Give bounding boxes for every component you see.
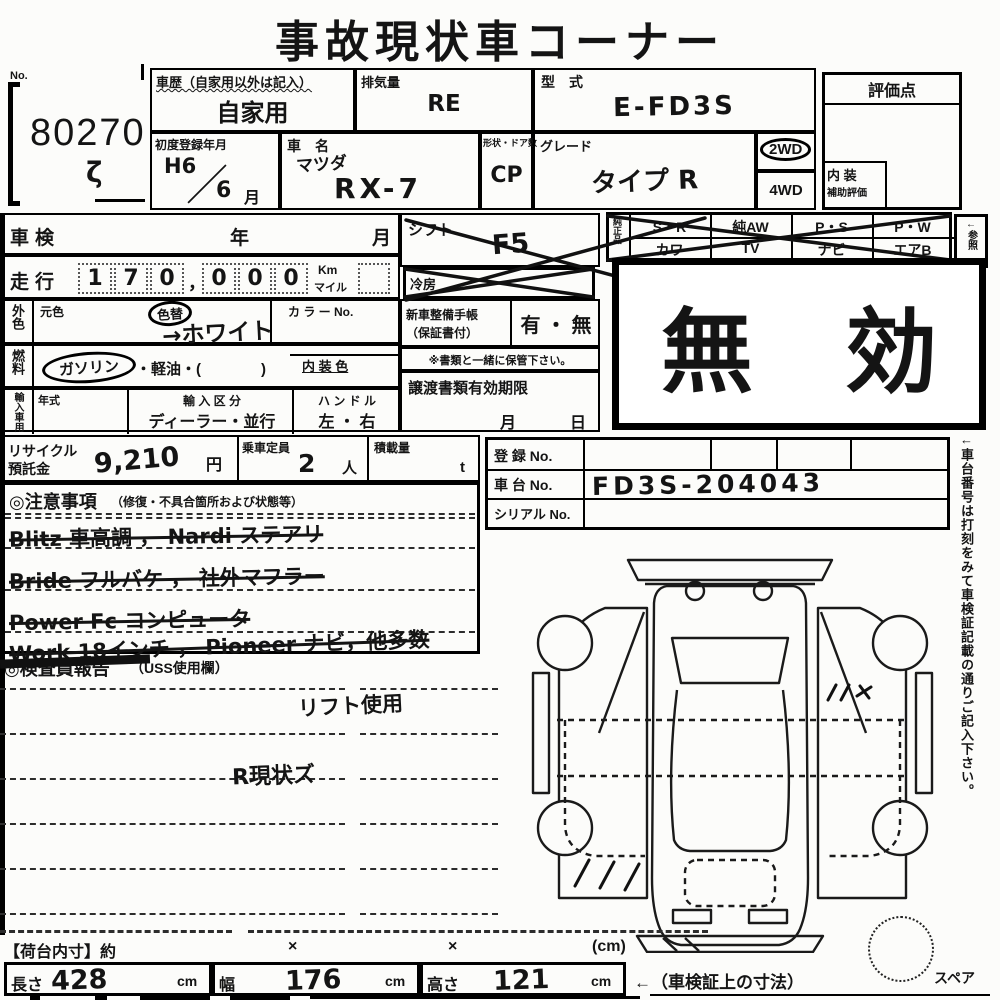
body-doors-label: 形状・ドア数 bbox=[483, 136, 531, 149]
lot-bracket-foot bbox=[95, 199, 145, 202]
note-line: Bride フルバケ ， 社外マフラー bbox=[9, 560, 325, 596]
fuel-diesel: ・軽油・( ) bbox=[136, 358, 266, 379]
ext-color-row: 外色 元色 色替 →ホワイト カ ラ ー No. bbox=[0, 299, 400, 344]
serial-no-label: シリアル No. bbox=[494, 504, 570, 523]
import-class-value: ディーラー・並行 bbox=[132, 408, 292, 432]
equip-leather: カワ bbox=[629, 240, 710, 260]
note-line: Blitz 車高調 ， Nardi ステアリ bbox=[9, 518, 324, 553]
history-cell: 車歴（自家用以外は記入） 自家用 bbox=[150, 68, 355, 132]
year-model-label: 年式 bbox=[38, 392, 60, 408]
shaken-year-label: 年 bbox=[230, 223, 249, 250]
drive-2wd: 2WD bbox=[760, 138, 811, 161]
notes-box: ◎注意事項 （修復・不具合箇所および状態等） Blitz 車高調 ， Nardi… bbox=[0, 482, 480, 654]
drive-2wd-cell: 2WD bbox=[756, 132, 816, 171]
first-reg-month: 6 bbox=[216, 178, 231, 203]
equip-pw: P・W bbox=[872, 217, 953, 237]
divider bbox=[710, 440, 712, 469]
shift-label: シフト bbox=[408, 219, 453, 240]
drive-4wd: 4WD bbox=[758, 182, 814, 199]
rule-line bbox=[360, 868, 498, 870]
history-value: 自家用 bbox=[152, 93, 353, 128]
displacement-cell: 排気量 RE bbox=[355, 68, 533, 132]
fuel-gasoline: ガソリン bbox=[41, 349, 137, 386]
mileage-row: 走行 1 7 0 ， 0 0 0 Km マイル bbox=[0, 255, 400, 299]
drive-4wd-cell: 4WD bbox=[756, 171, 816, 210]
length-cell: 長さ 428 cm bbox=[4, 962, 212, 996]
mileage-digit: 7 bbox=[114, 263, 148, 294]
model-code-cell: 型 式 E-FD3S bbox=[533, 68, 816, 132]
equip-sr: S・R bbox=[629, 217, 710, 237]
shaken-label: 車検 bbox=[10, 223, 60, 250]
length-unit: cm bbox=[177, 973, 197, 989]
keep-note-cell: ※書類と一緒に保管下さい。 bbox=[400, 347, 600, 371]
divider bbox=[270, 301, 272, 346]
rule-line bbox=[0, 930, 232, 933]
displacement-label: 排気量 bbox=[361, 72, 531, 91]
side-note-text: ←車台番号は打刻をみて車検証記載の通りご記入下さい。 bbox=[957, 432, 976, 902]
import-class-label: 輸 入 区 分 bbox=[132, 392, 292, 409]
cutoff-mark bbox=[230, 996, 290, 1000]
width-value: 176 bbox=[284, 964, 341, 997]
width-unit: cm bbox=[385, 973, 405, 989]
chassis-no-value: FD3S-204043 bbox=[592, 468, 824, 501]
bed-x1: × bbox=[288, 938, 297, 956]
interior-color-label: 内 装 色 bbox=[302, 356, 348, 375]
handle-label: ハ ン ド ル bbox=[297, 392, 397, 409]
cutoff-mark bbox=[650, 994, 990, 996]
spare-label: スペア bbox=[934, 968, 975, 988]
divider bbox=[127, 390, 129, 434]
history-label: 車歴（自家用以外は記入） bbox=[156, 72, 353, 91]
model-code-label: 型 式 bbox=[541, 72, 814, 92]
handle-value: 左 ・ 右 bbox=[297, 408, 397, 432]
recycle-label-2: 預託金 bbox=[8, 459, 50, 479]
rule-line bbox=[0, 688, 345, 690]
first-reg-cell: 初度登録年月 H6 ／ 6 月 bbox=[150, 132, 280, 210]
import-row: 輸入車用 年式 輸 入 区 分 ディーラー・並行 ハ ン ド ル 左 ・ 右 bbox=[0, 388, 400, 432]
recycle-label-1: リサイクル bbox=[8, 441, 77, 461]
transfer-label: 譲渡書類有効期限 bbox=[408, 377, 528, 398]
length-label: 長さ bbox=[11, 971, 43, 995]
cutoff-mark bbox=[310, 996, 640, 999]
model-code-value: E-FD3S bbox=[535, 90, 814, 125]
divider bbox=[32, 346, 34, 390]
equipment-table: 純正品 S・R 純AW P・S P・W カワ TV ナビ エアB bbox=[606, 212, 952, 262]
invalid-stamp: 無 効 bbox=[612, 258, 986, 430]
divider bbox=[583, 440, 585, 527]
length-value: 428 bbox=[50, 964, 107, 997]
equip-navi: ナビ bbox=[791, 240, 872, 260]
page-title: 事故現状車コーナー bbox=[0, 6, 1000, 70]
cutoff-mark bbox=[30, 995, 40, 1000]
interior-score-cell: 内 装 補助評価 bbox=[825, 161, 887, 207]
transfer-day: 日 bbox=[570, 409, 586, 433]
lot-squiggle: ζ bbox=[86, 156, 103, 189]
divider bbox=[850, 440, 852, 469]
mileage-digit: 1 bbox=[78, 263, 112, 294]
divider bbox=[32, 390, 34, 434]
mileage-digit: 0 bbox=[150, 263, 184, 294]
booklet-cell: 新車整備手帳 （保証書付） 有 ・ 無 bbox=[400, 299, 600, 347]
orig-color-label: 元色 bbox=[40, 303, 64, 320]
divider bbox=[237, 437, 239, 480]
reg-no-label: 登 録 No. bbox=[494, 446, 552, 466]
divider bbox=[367, 437, 369, 480]
chassis-no-label: 車 台 No. bbox=[494, 475, 552, 495]
equip-tv: TV bbox=[710, 240, 791, 256]
body-doors-cell: 形状・ドア数 CP bbox=[480, 132, 533, 210]
load-unit: t bbox=[460, 459, 465, 476]
dims-arrow-note: ←（車検証上の寸法） bbox=[634, 968, 804, 993]
rule-line bbox=[5, 513, 475, 515]
make-cell: 車 名 マツダ RX-7 bbox=[280, 132, 480, 210]
mileage-digit: 0 bbox=[274, 263, 308, 294]
fuel-row: 燃料 ガソリン ・軽油・( ) 内 装 色 bbox=[0, 344, 400, 388]
height-value: 121 bbox=[492, 964, 549, 997]
bed-unit: (cm) bbox=[592, 938, 626, 956]
transfer-month: 月 bbox=[500, 409, 516, 433]
grade-cell: グレード タイプ R bbox=[533, 132, 756, 210]
displacement-value: RE bbox=[357, 91, 531, 117]
interior-label: 内 装 bbox=[827, 165, 883, 184]
mileage-label: 走行 bbox=[10, 267, 60, 294]
cutoff-mark bbox=[95, 995, 107, 1000]
color-no-label: カ ラ ー No. bbox=[288, 303, 353, 320]
shift-value: F5 bbox=[491, 228, 530, 262]
height-unit: cm bbox=[591, 973, 611, 989]
rule-line bbox=[0, 868, 345, 870]
mileage-digit: 0 bbox=[238, 263, 272, 294]
keep-note: ※書類と一緒に保管下さい。 bbox=[402, 352, 598, 368]
equip-airbag: エアB bbox=[872, 240, 953, 260]
car-diagram bbox=[495, 548, 970, 953]
recycle-yen: 円 bbox=[206, 451, 222, 475]
booklet-value: 有 ・ 無 bbox=[514, 309, 598, 338]
bed-dims-label: 【荷台内寸】約 bbox=[4, 938, 116, 962]
model-value: RX-7 bbox=[334, 172, 422, 205]
booklet-sub-label: （保証書付） bbox=[406, 324, 478, 341]
mileage-empty-cell bbox=[358, 263, 390, 294]
rule-line bbox=[0, 733, 345, 735]
auction-sheet: 事故現状車コーナー No. 80270 ζ 車歴（自家用以外は記入） 自家用 排… bbox=[0, 0, 1000, 1000]
transfer-cell: 譲渡書類有効期限 月 日 bbox=[400, 371, 600, 432]
rule-line bbox=[248, 930, 708, 933]
ext-color-label: 外色 bbox=[8, 304, 27, 342]
tick-mark bbox=[141, 64, 144, 80]
km-label: Km bbox=[318, 263, 337, 277]
rule-line bbox=[0, 823, 345, 825]
divider bbox=[510, 301, 512, 345]
fuel-label: 燃料 bbox=[8, 349, 27, 387]
mile-label: マイル bbox=[314, 279, 347, 295]
bed-x2: × bbox=[448, 938, 457, 956]
booklet-label: 新車整備手帳 bbox=[406, 306, 478, 323]
capacity-unit: 人 bbox=[342, 457, 357, 478]
inspector-note-1: リフト使用 bbox=[297, 687, 403, 722]
equip-ps: P・S bbox=[791, 217, 872, 237]
equip-aw: 純AW bbox=[710, 217, 791, 237]
divider bbox=[776, 440, 778, 469]
inspector-note-2: R現状ズ bbox=[231, 757, 315, 792]
divider bbox=[32, 301, 34, 346]
interior-sub-label: 補助評価 bbox=[827, 184, 883, 199]
notes-header-sub: （修復・不具合箇所および状態等） bbox=[111, 493, 303, 510]
rule-line bbox=[360, 823, 498, 825]
first-reg-label: 初度登録年月 bbox=[155, 136, 278, 153]
invalid-stamp-text: 無 効 bbox=[661, 278, 937, 411]
divider bbox=[292, 390, 294, 434]
capacity-label: 乗車定員 bbox=[242, 439, 290, 456]
capacity-value: 2 bbox=[298, 449, 315, 478]
load-label: 積載量 bbox=[374, 439, 410, 456]
height-cell: 高さ 121 cm bbox=[420, 962, 626, 996]
recycle-value: 9,210 bbox=[93, 441, 181, 479]
grade-value: タイプ R bbox=[534, 157, 754, 202]
notes-header: ◎注意事項 bbox=[9, 488, 97, 514]
cooler-label: 冷房 bbox=[410, 274, 436, 293]
import-label: 輸入車用 bbox=[10, 392, 25, 432]
lot-bracket bbox=[8, 82, 20, 206]
first-reg-month-label: 月 bbox=[244, 184, 260, 208]
rule-line bbox=[0, 913, 345, 915]
registration-block: 登 録 No. 車 台 No. FD3S-204043 シリアル No. bbox=[485, 437, 950, 530]
height-label: 高さ bbox=[427, 971, 459, 995]
rule-line bbox=[5, 517, 475, 519]
grade-label: グレード bbox=[540, 136, 754, 155]
shaken-month-label: 月 bbox=[372, 223, 391, 250]
shaken-row: 車検 年 月 bbox=[0, 213, 400, 255]
width-cell: 幅 176 cm bbox=[212, 962, 420, 996]
rule-line bbox=[360, 913, 498, 915]
spare-wheel-circle bbox=[868, 916, 934, 982]
cooler-cell: 冷房 bbox=[403, 267, 595, 299]
lot-number: 80270 bbox=[30, 112, 146, 155]
shift-cell: シフト F5 bbox=[400, 213, 600, 267]
cutoff-mark bbox=[140, 996, 210, 1000]
lot-no-label: No. bbox=[10, 70, 28, 82]
width-label: 幅 bbox=[219, 971, 235, 995]
rule-line bbox=[360, 733, 498, 735]
score-box: 評価点 内 装 補助評価 bbox=[822, 72, 962, 210]
rule-line bbox=[360, 778, 498, 780]
equipment-side-label: 純正品 bbox=[611, 217, 624, 259]
score-label: 評価点 bbox=[825, 75, 959, 105]
mileage-digit: 0 bbox=[202, 263, 236, 294]
body-doors-value: CP bbox=[482, 163, 531, 188]
recycle-row: リサイクル 預託金 9,210 円 乗車定員 2 人 積載量 t bbox=[0, 435, 480, 482]
